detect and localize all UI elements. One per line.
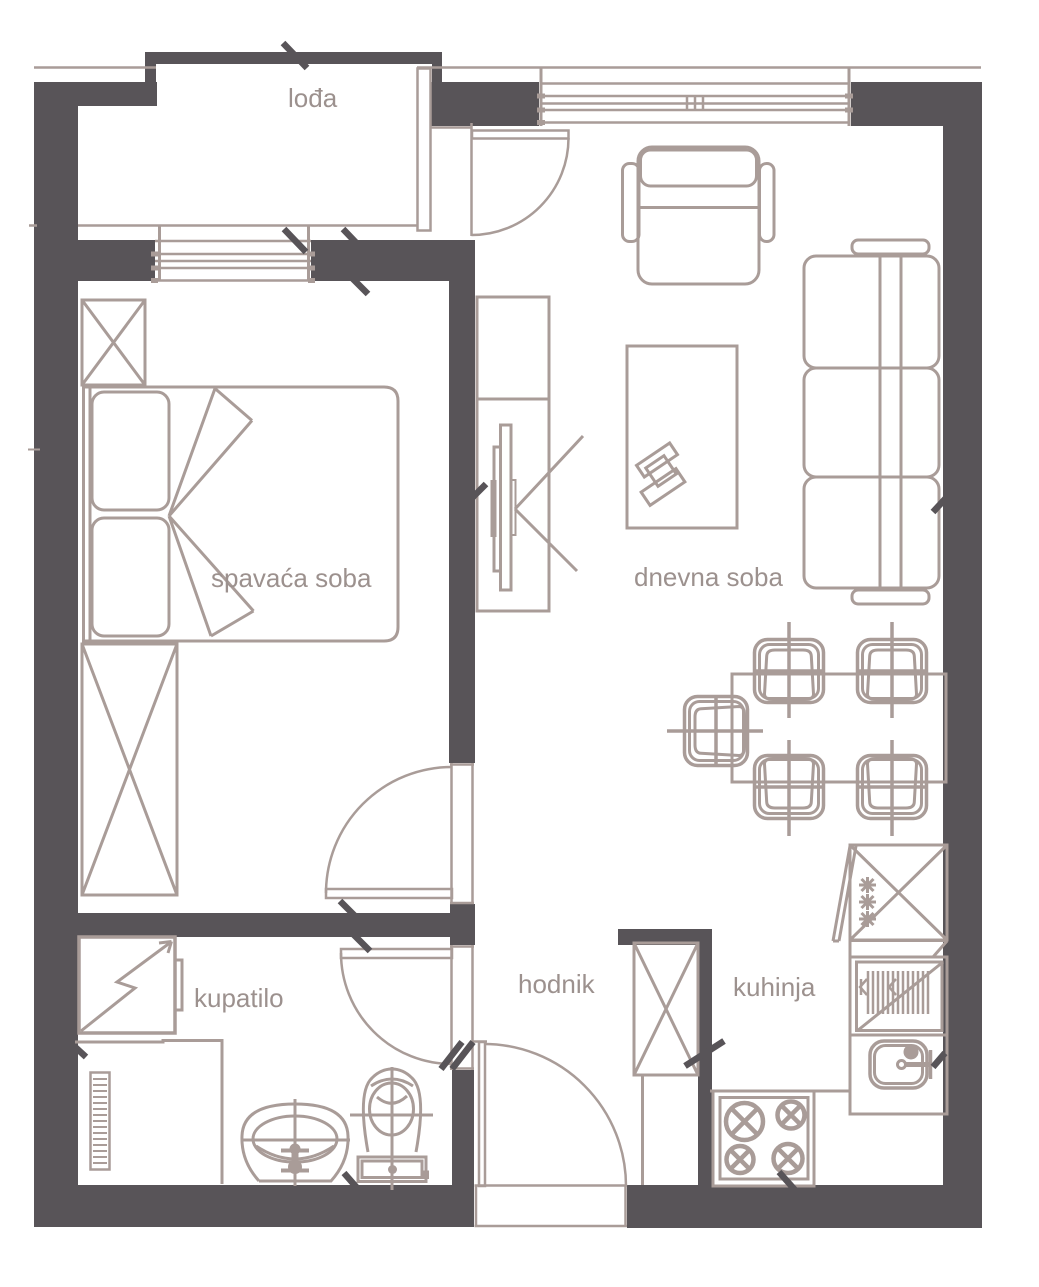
svg-text:hodnik: hodnik: [518, 969, 596, 999]
svg-text:kuhinja: kuhinja: [733, 972, 816, 1002]
svg-text:lođa: lođa: [288, 83, 338, 113]
svg-text:dnevna soba: dnevna soba: [634, 562, 783, 592]
svg-text:kupatilo: kupatilo: [194, 983, 284, 1013]
svg-text:spavaća soba: spavaća soba: [211, 563, 372, 593]
